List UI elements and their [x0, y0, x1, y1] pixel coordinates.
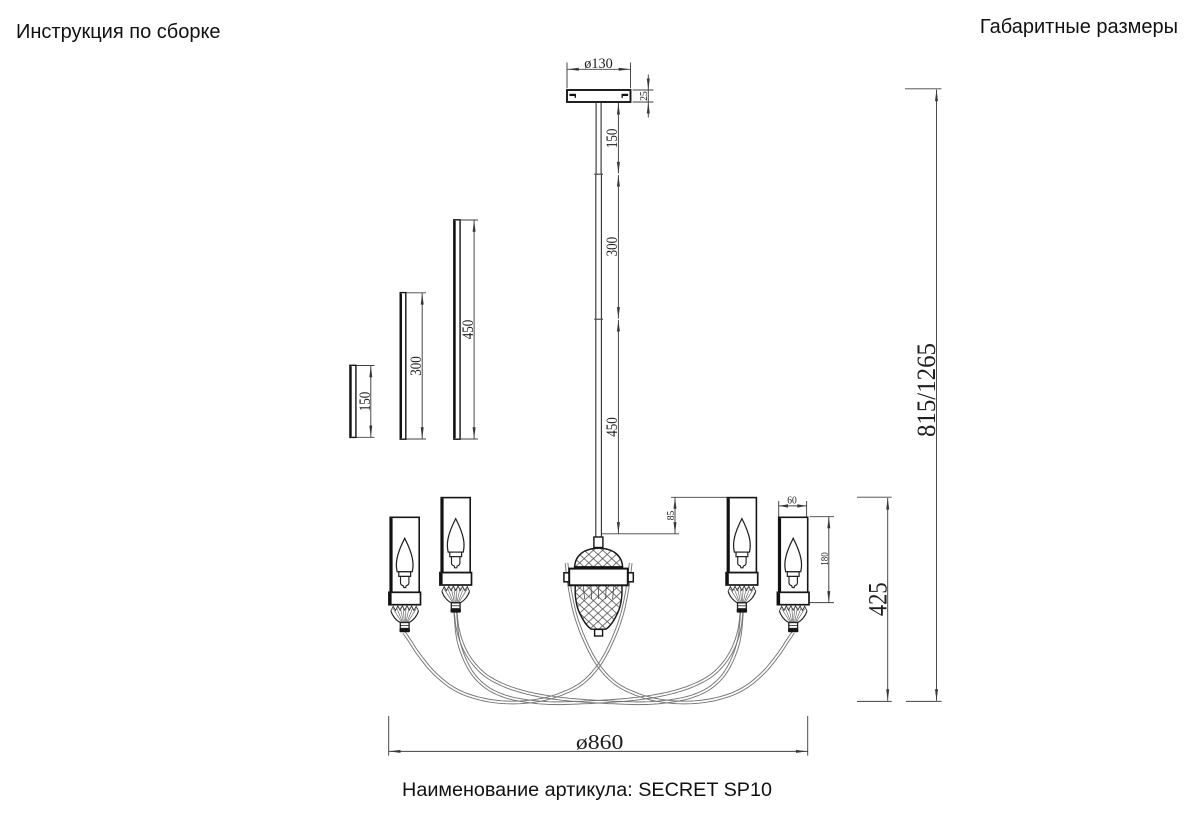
- svg-text:300: 300: [604, 237, 621, 257]
- svg-text:450: 450: [604, 417, 621, 437]
- svg-text:60: 60: [787, 496, 797, 507]
- svg-text:ø860: ø860: [576, 730, 624, 754]
- svg-text:Габаритные размеры: Габаритные размеры: [980, 16, 1178, 38]
- svg-text:300: 300: [408, 356, 425, 376]
- svg-text:150: 150: [604, 129, 621, 149]
- svg-text:815/1265: 815/1265: [912, 343, 941, 437]
- svg-text:ø130: ø130: [584, 56, 613, 72]
- svg-text:450: 450: [460, 320, 477, 340]
- svg-text:25: 25: [639, 91, 650, 101]
- svg-text:Наименование артикула: SECRET: Наименование артикула: SECRET SP10: [402, 779, 772, 801]
- svg-text:85: 85: [666, 511, 677, 521]
- svg-text:425: 425: [863, 582, 892, 616]
- svg-text:150: 150: [357, 392, 374, 412]
- svg-text:180: 180: [820, 552, 831, 566]
- svg-text:Инструкция по сборке: Инструкция по сборке: [16, 21, 221, 43]
